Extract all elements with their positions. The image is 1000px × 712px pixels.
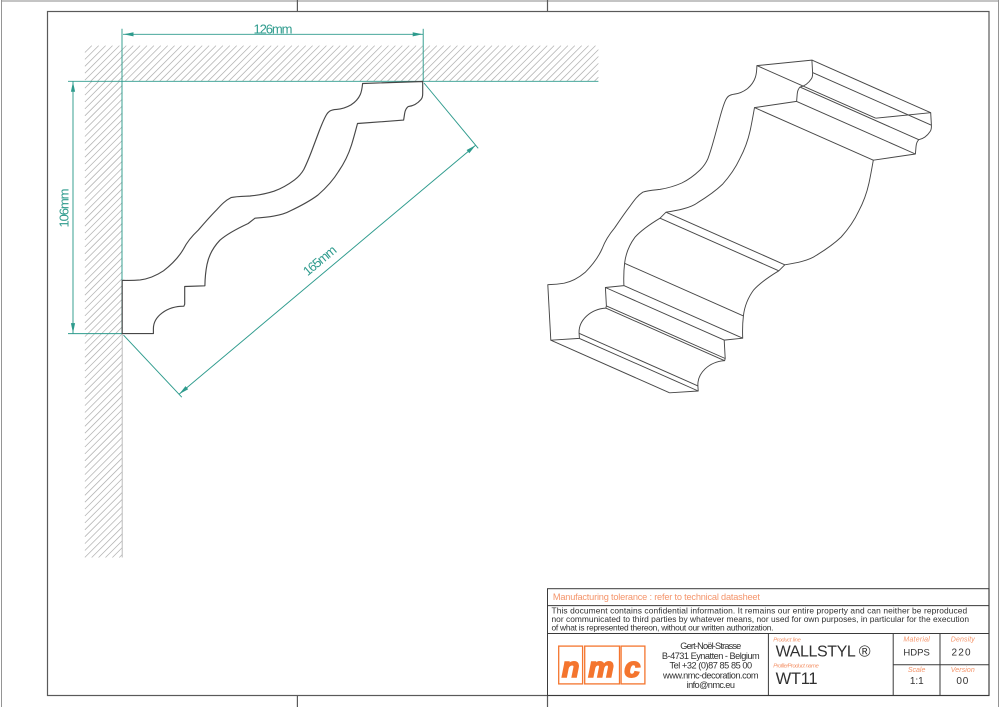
svg-text:n: n	[562, 652, 580, 684]
svg-text:00: 00	[956, 676, 969, 687]
svg-text:Version: Version	[951, 667, 975, 674]
svg-text:Material: Material	[903, 636, 930, 643]
svg-text:c: c	[624, 652, 640, 684]
svg-text:Density: Density	[951, 636, 976, 643]
svg-text:106mm: 106mm	[57, 189, 72, 228]
svg-text:info@nmc.eu: info@nmc.eu	[687, 680, 735, 690]
svg-text:1:1: 1:1	[910, 676, 924, 687]
svg-text:Scale: Scale	[908, 667, 926, 674]
svg-text:www.nmc-decoration.com: www.nmc-decoration.com	[662, 671, 759, 681]
svg-text:m: m	[588, 652, 614, 684]
svg-text:HDPS: HDPS	[903, 647, 929, 658]
svg-text:Manufacturing tolerance : refe: Manufacturing tolerance : refer to techn…	[553, 592, 760, 602]
svg-text:Gert-Noël-Strasse: Gert-Noël-Strasse	[680, 641, 741, 651]
svg-text:WT11: WT11	[776, 670, 818, 688]
svg-text:B-4731 Eynatten - Belgium: B-4731 Eynatten - Belgium	[662, 651, 760, 661]
svg-text:Profile/Product name: Profile/Product name	[773, 664, 819, 670]
svg-text:126mm: 126mm	[254, 21, 293, 36]
svg-text:Tel +32 (0)87 85 85 00: Tel +32 (0)87 85 85 00	[669, 661, 752, 671]
svg-text:Product line: Product line	[773, 637, 801, 643]
svg-text:WALLSTYL ®: WALLSTYL ®	[776, 643, 871, 660]
svg-text:220: 220	[951, 647, 971, 658]
svg-text:of what is represented thereon: of what is represented thereon, without …	[552, 622, 774, 632]
